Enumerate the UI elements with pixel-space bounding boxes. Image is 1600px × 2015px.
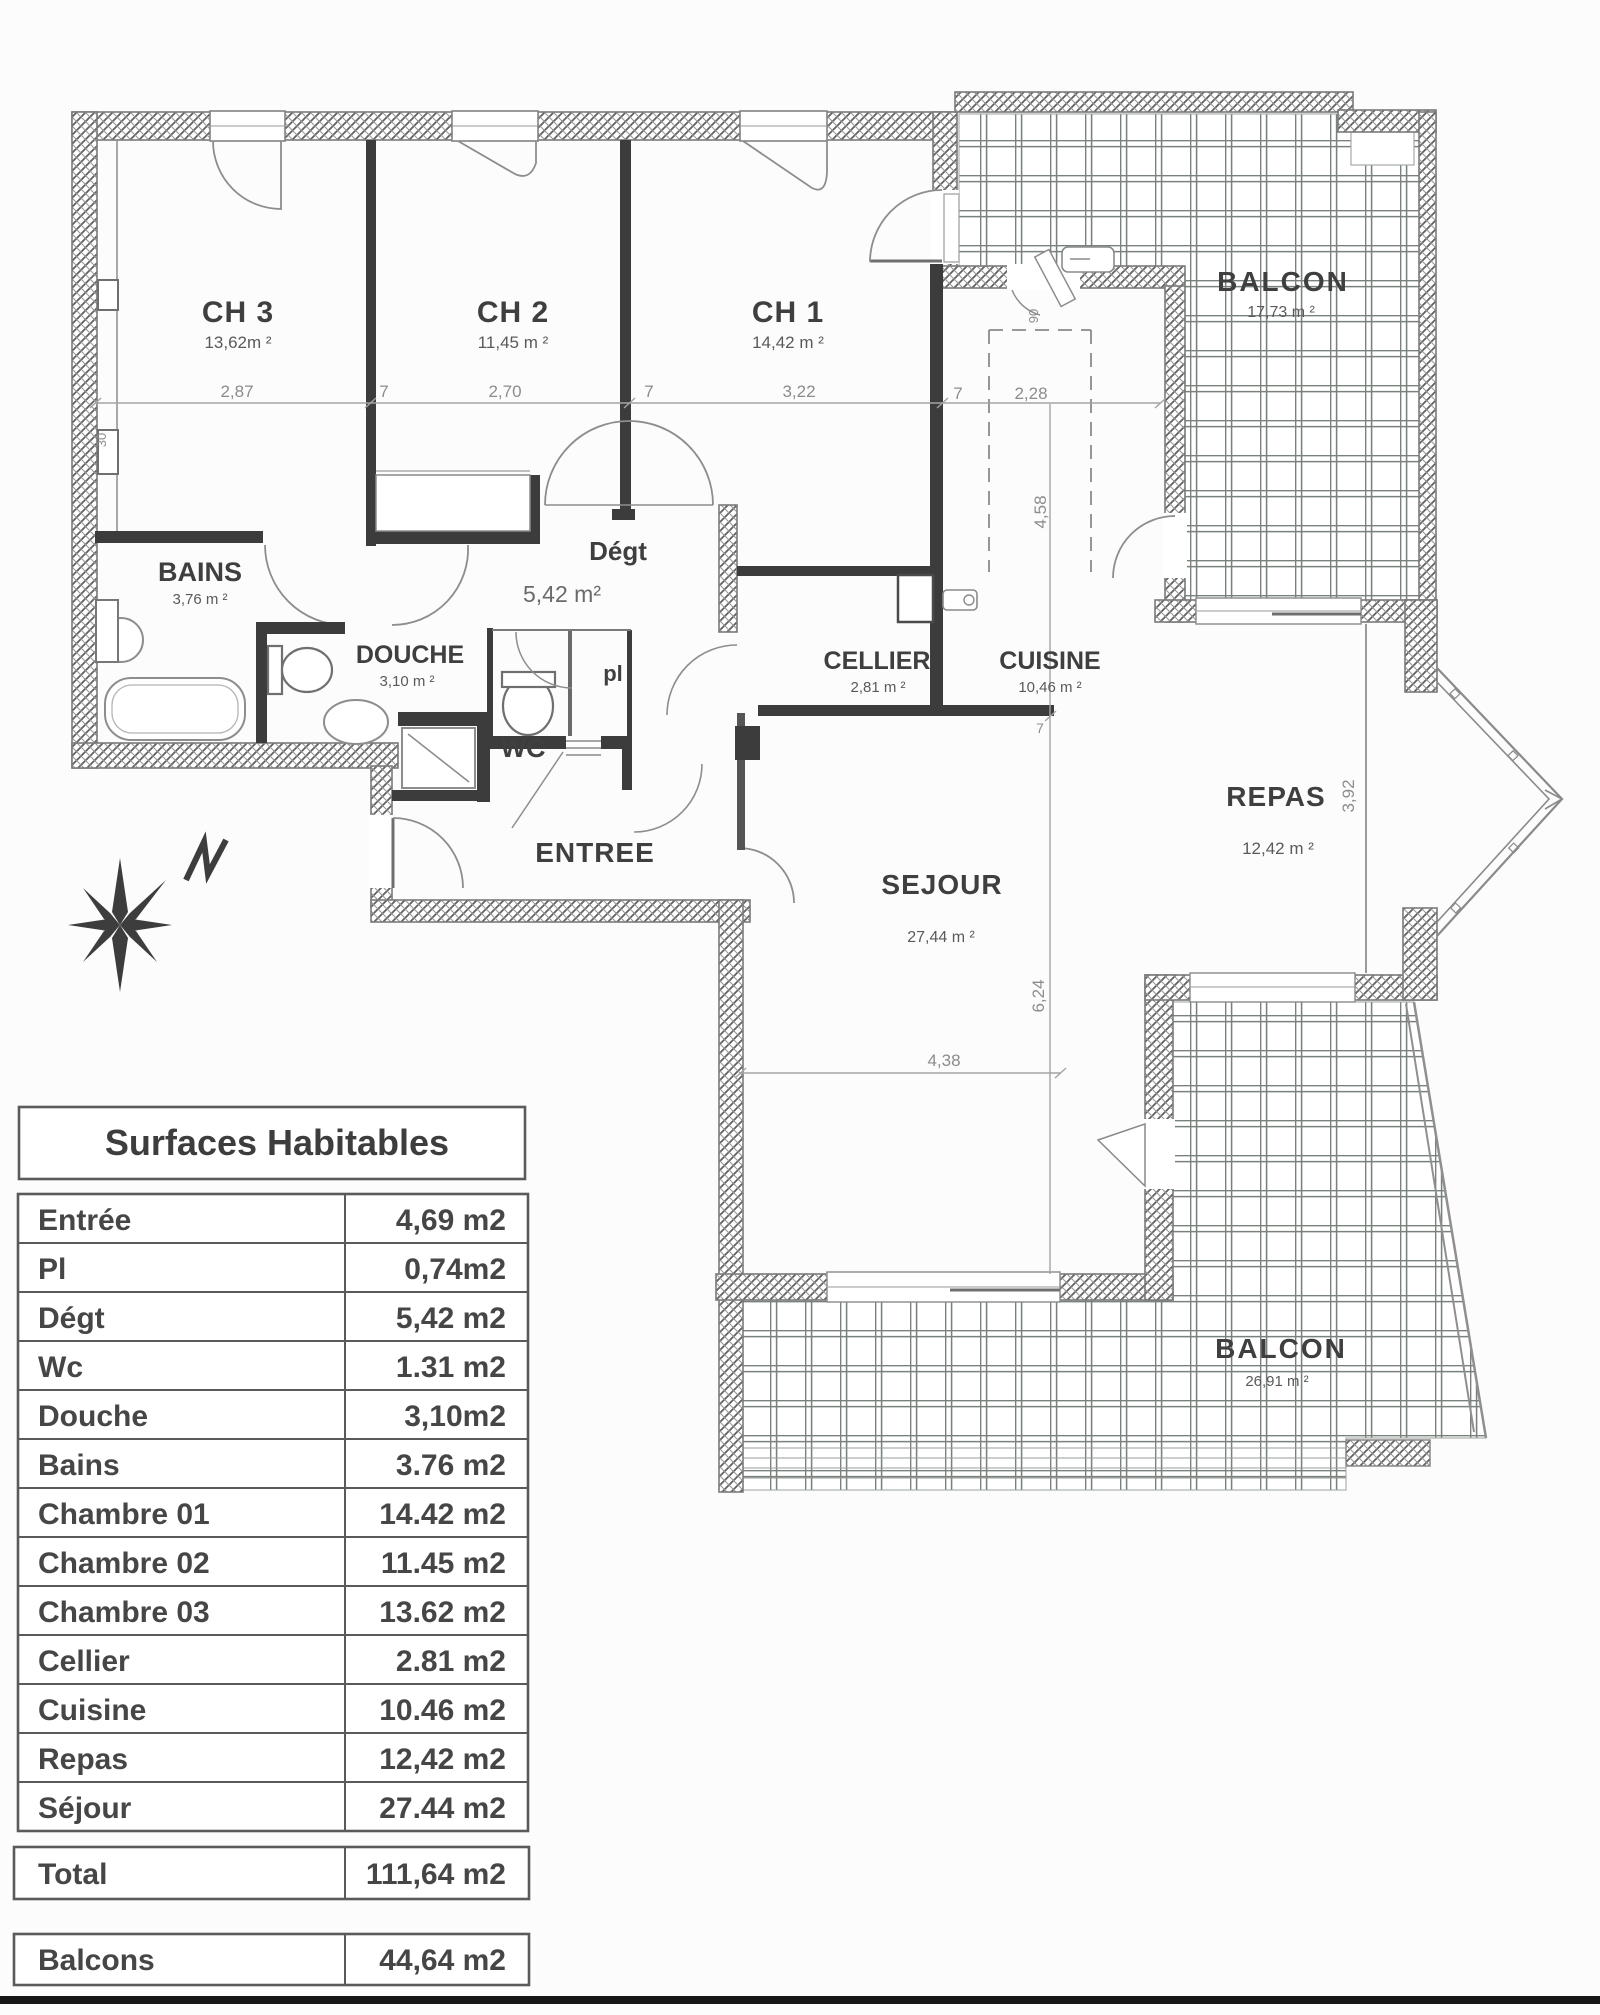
- svg-text:Chambre 02: Chambre 02: [38, 1547, 210, 1580]
- svg-text:3,22: 3,22: [782, 382, 815, 401]
- svg-text:6,24: 6,24: [1029, 979, 1048, 1012]
- svg-text:14.42 m2: 14.42 m2: [379, 1498, 506, 1531]
- svg-text:CH 1: CH 1: [752, 296, 824, 329]
- svg-text:Wc: Wc: [38, 1351, 83, 1384]
- svg-text:Pl: Pl: [38, 1253, 66, 1286]
- svg-text:SEJOUR: SEJOUR: [881, 869, 1002, 900]
- svg-text:2,28: 2,28: [1014, 384, 1047, 403]
- svg-text:13.62 m2: 13.62 m2: [379, 1596, 506, 1629]
- svg-text:5,42 m2: 5,42 m2: [396, 1302, 506, 1335]
- svg-text:90: 90: [1026, 309, 1041, 323]
- svg-text:Séjour: Séjour: [38, 1792, 132, 1825]
- svg-text:11.45 m2: 11.45 m2: [381, 1547, 506, 1580]
- svg-text:26,91 m ²: 26,91 m ²: [1245, 1373, 1308, 1390]
- svg-text:10,46 m ²: 10,46 m ²: [1018, 679, 1081, 696]
- svg-text:2,87: 2,87: [220, 382, 253, 401]
- svg-text:2,81 m ²: 2,81 m ²: [850, 679, 905, 696]
- svg-text:CH 2: CH 2: [477, 296, 549, 329]
- svg-text:BALCON: BALCON: [1215, 1333, 1347, 1364]
- svg-text:27.44 m2: 27.44 m2: [379, 1792, 506, 1825]
- svg-text:2,70: 2,70: [488, 382, 521, 401]
- svg-text:4,38: 4,38: [927, 1051, 960, 1070]
- svg-text:Douche: Douche: [38, 1400, 148, 1433]
- svg-text:Entrée: Entrée: [38, 1204, 131, 1237]
- svg-text:3,76 m ²: 3,76 m ²: [172, 591, 227, 608]
- svg-text:CH 3: CH 3: [202, 296, 274, 329]
- svg-text:7: 7: [379, 382, 388, 401]
- svg-text:13,62m ²: 13,62m ²: [204, 333, 271, 352]
- svg-text:Chambre 01: Chambre 01: [38, 1498, 210, 1531]
- svg-text:BAINS: BAINS: [158, 557, 242, 587]
- svg-text:111,64 m2: 111,64 m2: [366, 1858, 506, 1891]
- svg-text:0,74m2: 0,74m2: [404, 1253, 506, 1286]
- svg-text:44,64 m2: 44,64 m2: [379, 1944, 506, 1977]
- svg-text:12,42 m2: 12,42 m2: [379, 1743, 506, 1776]
- svg-text:BALCON: BALCON: [1217, 266, 1349, 297]
- svg-text:Cuisine: Cuisine: [38, 1694, 146, 1727]
- svg-text:DOUCHE: DOUCHE: [356, 641, 464, 669]
- svg-text:3,10m2: 3,10m2: [404, 1400, 506, 1433]
- svg-text:Balcons: Balcons: [38, 1944, 155, 1977]
- svg-text:11,45 m ²: 11,45 m ²: [478, 333, 549, 352]
- svg-text:10.46 m2: 10.46 m2: [379, 1694, 506, 1727]
- svg-text:14,42 m ²: 14,42 m ²: [752, 333, 824, 352]
- svg-text:Surfaces Habitables: Surfaces Habitables: [105, 1122, 449, 1163]
- svg-text:Cellier: Cellier: [38, 1645, 130, 1678]
- svg-text:ENTREE: ENTREE: [535, 837, 655, 868]
- svg-text:pl: pl: [603, 661, 623, 686]
- svg-text:2.81 m2: 2.81 m2: [396, 1645, 506, 1678]
- svg-text:7: 7: [953, 384, 962, 403]
- svg-text:Bains: Bains: [38, 1449, 120, 1482]
- svg-text:Repas: Repas: [38, 1743, 128, 1776]
- svg-text:Dégt: Dégt: [38, 1302, 105, 1335]
- svg-text:12,42 m ²: 12,42 m ²: [1242, 839, 1314, 858]
- svg-text:3,92: 3,92: [1339, 779, 1358, 812]
- svg-text:7: 7: [1036, 720, 1044, 736]
- svg-text:CUISINE: CUISINE: [999, 647, 1100, 675]
- svg-text:Chambre 03: Chambre 03: [38, 1596, 210, 1629]
- svg-text:30: 30: [94, 433, 109, 447]
- svg-text:Total: Total: [38, 1858, 107, 1891]
- svg-text:WC: WC: [501, 733, 546, 763]
- svg-text:27,44 m ²: 27,44 m ²: [907, 929, 975, 946]
- svg-text:REPAS: REPAS: [1226, 781, 1325, 812]
- svg-text:5,42 m²: 5,42 m²: [523, 581, 601, 607]
- svg-text:1.31 m2: 1.31 m2: [396, 1351, 506, 1384]
- svg-text:4,58: 4,58: [1031, 495, 1050, 528]
- svg-text:3,10 m ²: 3,10 m ²: [379, 673, 434, 690]
- svg-text:17,73 m ²: 17,73 m ²: [1247, 304, 1315, 321]
- svg-text:7: 7: [644, 382, 653, 401]
- svg-text:3.76 m2: 3.76 m2: [396, 1449, 506, 1482]
- svg-text:4,69 m2: 4,69 m2: [396, 1204, 506, 1237]
- svg-text:Dégt: Dégt: [589, 536, 647, 566]
- svg-text:CELLIER: CELLIER: [824, 647, 931, 675]
